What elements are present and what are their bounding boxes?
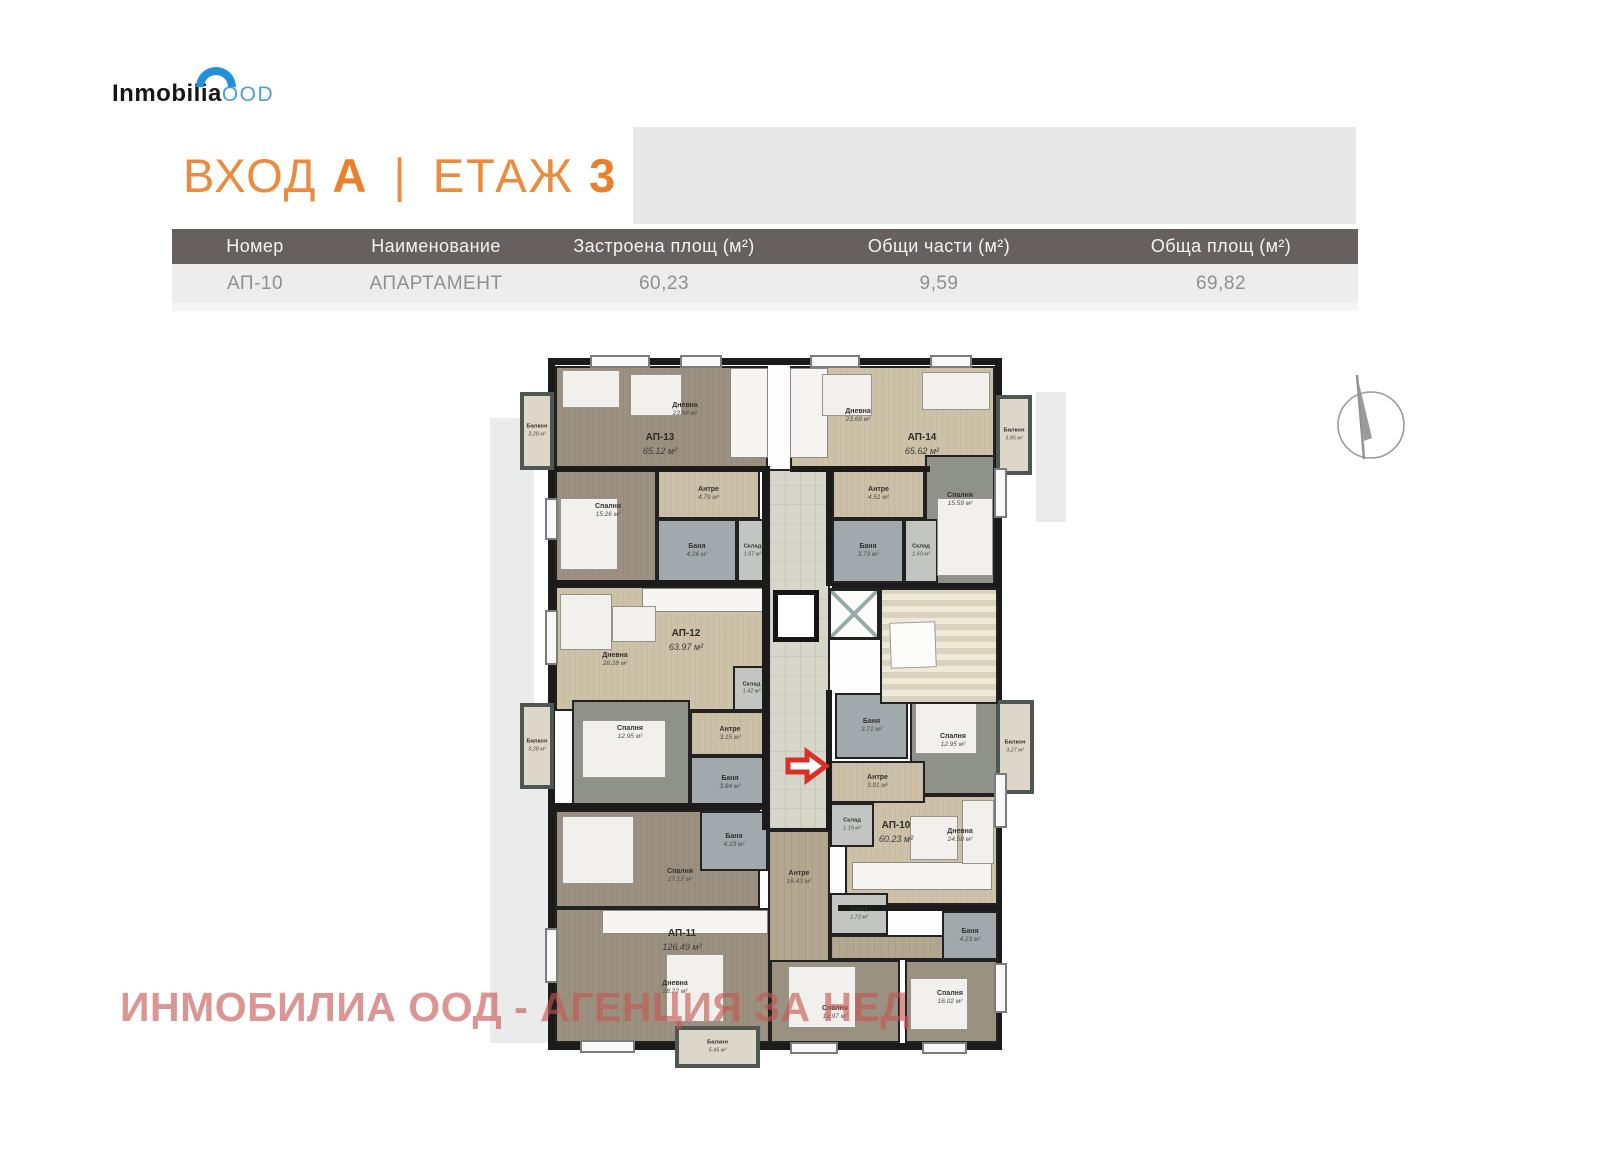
window — [580, 1040, 635, 1053]
furniture — [562, 370, 620, 408]
furniture — [922, 372, 990, 410]
cell-built-area: 60,23 — [534, 264, 794, 303]
furniture — [915, 696, 977, 754]
logo: InmobiliaOOD — [112, 80, 274, 108]
apartment-table: Номер Наименование Застроена площ (м²) О… — [172, 229, 1358, 311]
furniture — [582, 720, 666, 778]
furniture — [910, 816, 958, 860]
room-балкон — [520, 703, 554, 789]
room-антре — [832, 469, 925, 519]
window — [590, 355, 650, 368]
room-антре — [690, 711, 770, 756]
table-row: АП-10 АПАРТАМЕНТ 60,23 9,59 69,82 — [172, 264, 1358, 303]
window — [545, 928, 558, 983]
room-балкон — [520, 392, 554, 470]
furniture — [910, 978, 968, 1030]
interior-wall — [555, 803, 767, 810]
header-panel — [633, 127, 1356, 224]
room-баня — [657, 519, 737, 583]
page-title: ВХОД А | ЕТАЖ 3 — [183, 148, 617, 203]
interior-wall — [555, 466, 762, 472]
window — [922, 1042, 967, 1054]
room-баня — [690, 756, 770, 810]
table-footer-strip — [172, 303, 1358, 311]
room-балкон — [675, 1026, 760, 1068]
stair-landing — [889, 621, 937, 669]
room-антре — [830, 761, 925, 803]
window — [545, 498, 558, 540]
room-баня — [700, 811, 768, 871]
room-антре — [657, 469, 760, 519]
kitchen-counter — [642, 588, 768, 612]
watermark: ИНМОБИЛИА ООД - АГЕНЦИЯ ЗА НЕД — [120, 984, 910, 1031]
logo-arc-icon — [196, 67, 236, 87]
elevator — [773, 590, 819, 642]
room-склад — [904, 519, 938, 583]
window — [790, 1042, 838, 1054]
kitchen-counter — [852, 862, 992, 890]
room-балкон — [996, 395, 1032, 475]
interior-wall — [762, 466, 770, 830]
common-wc — [828, 588, 880, 640]
furniture — [630, 374, 682, 416]
floor-value: 3 — [589, 149, 617, 202]
interior-wall — [838, 905, 998, 911]
site-shadow — [1036, 392, 1066, 522]
furniture — [937, 498, 993, 576]
cell-total-area: 69,82 — [1084, 264, 1358, 303]
table-header-built-area: Застроена площ (м²) — [534, 229, 794, 264]
compass-icon — [1325, 368, 1417, 468]
room-склад — [830, 803, 874, 847]
floor-label: ЕТАЖ — [433, 149, 574, 202]
floorplan: Антре16.43 м²Дневна23.98 м²Дневна23.69 м… — [490, 348, 1070, 1076]
furniture — [612, 606, 656, 642]
interior-wall — [790, 466, 930, 472]
room-антре — [768, 830, 830, 970]
table-header-total-area: Обща площ (м²) — [1084, 229, 1358, 264]
room-баня — [942, 911, 998, 960]
cell-number: АП-10 — [172, 264, 338, 303]
entrance-label: ВХОД — [183, 149, 317, 202]
furniture — [822, 374, 872, 416]
furniture — [962, 800, 994, 864]
room-баня — [832, 519, 904, 583]
furniture — [560, 498, 618, 570]
entrance-value: А — [333, 149, 369, 202]
table-header-row: Номер Наименование Застроена площ (м²) О… — [172, 229, 1358, 264]
entrance-arrow-icon — [784, 747, 830, 785]
title-divider: | — [384, 149, 418, 202]
table-header-number: Номер — [172, 229, 338, 264]
window — [680, 355, 722, 368]
table-header-name: Наименование — [338, 229, 534, 264]
window — [994, 468, 1007, 518]
furniture — [562, 816, 634, 884]
table-header-common-parts: Общи части (м²) — [794, 229, 1084, 264]
window — [810, 355, 860, 368]
furniture — [560, 594, 612, 650]
interior-wall — [555, 580, 765, 587]
kitchen-counter — [730, 368, 768, 458]
room-склад — [830, 893, 888, 935]
kitchen-counter — [602, 910, 768, 934]
window — [930, 355, 972, 368]
interior-wall — [826, 466, 832, 586]
window — [994, 773, 1007, 828]
window — [545, 610, 558, 665]
cell-name: АПАРТАМЕНТ — [338, 264, 534, 303]
window — [994, 963, 1007, 1013]
cell-common-parts: 9,59 — [794, 264, 1084, 303]
